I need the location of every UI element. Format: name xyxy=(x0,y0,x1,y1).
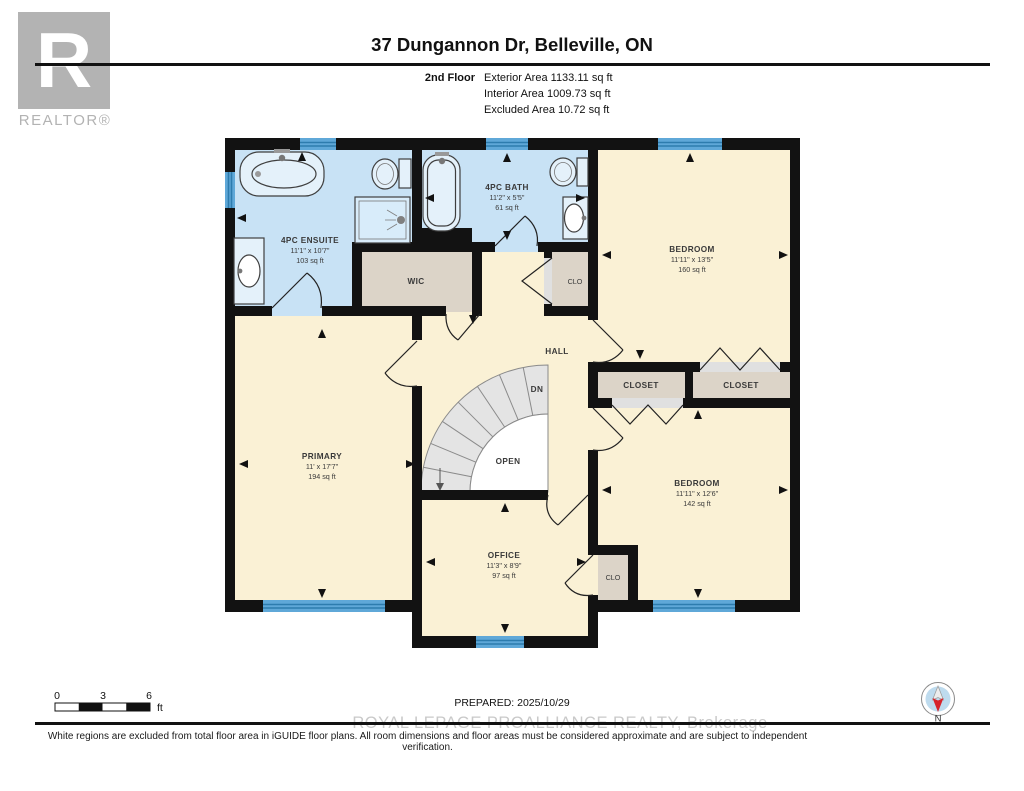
room-dims-ensuite: 11'1" x 10'7" xyxy=(291,246,330,255)
realtor-logo-word: REALTOR® xyxy=(6,112,124,129)
realtor-logo-r: R xyxy=(36,12,92,109)
room-label-bedroom1: BEDROOM xyxy=(669,245,715,254)
closet1-opening xyxy=(612,398,683,408)
window xyxy=(263,600,385,612)
bathtub-icon xyxy=(240,149,324,196)
room-area-primary: 194 sq ft xyxy=(308,472,336,481)
room-area-office: 97 sq ft xyxy=(492,571,516,580)
stairs-open-label: OPEN xyxy=(496,457,521,466)
room-label-closet2: CLOSET xyxy=(723,381,759,390)
excluded-area: Excluded Area 10.72 sq ft xyxy=(484,104,744,116)
toilet-icon xyxy=(550,158,588,186)
room-label-primary: PRIMARY xyxy=(302,452,342,461)
window xyxy=(225,172,235,208)
room-dims-bath: 11'2" x 5'5" xyxy=(490,193,525,202)
exterior-area: Exterior Area 1133.11 sq ft xyxy=(484,72,744,84)
room-label-clo-bottom: CLO xyxy=(606,573,621,582)
floor-plan-drawing: 4PC ENSUITE 11'1" x 10'7" 103 sq ft 4PC … xyxy=(0,0,1024,791)
prepared-date: PREPARED: 2025/10/29 xyxy=(0,697,1024,709)
room-area-bedroom1: 160 sq ft xyxy=(678,265,706,274)
room-label-bedroom2: BEDROOM xyxy=(674,479,720,488)
interior-area: Interior Area 1009.73 sq ft xyxy=(484,88,744,100)
header-divider xyxy=(35,63,990,66)
room-dims-office: 11'3" x 8'9" xyxy=(487,561,522,570)
window xyxy=(486,138,528,150)
room-dims-bedroom1: 11'11" x 13'5" xyxy=(671,255,714,264)
window xyxy=(476,636,524,648)
sink-icon xyxy=(234,238,264,304)
room-area-bath: 61 sq ft xyxy=(495,203,519,212)
floor-label: 2nd Floor xyxy=(330,72,475,84)
page-title: 37 Dungannon Dr, Belleville, ON xyxy=(0,34,1024,56)
room-label-closet1: CLOSET xyxy=(623,381,659,390)
room-dims-bedroom2: 11'11" x 12'6" xyxy=(676,489,719,498)
room-label-wic: WIC xyxy=(407,277,424,286)
floor-plan-page: R REALTOR® 37 Dungannon Dr, Belleville, … xyxy=(0,0,1024,791)
room-office-floor xyxy=(418,500,598,640)
toilet-icon xyxy=(372,159,411,189)
shower-icon xyxy=(355,197,410,243)
room-label-office: OFFICE xyxy=(488,551,521,560)
bathtub-icon xyxy=(423,152,460,231)
disclaimer-text: White regions are excluded from total fl… xyxy=(30,731,825,753)
window xyxy=(653,600,735,612)
sink-icon xyxy=(563,197,588,239)
clo-top-opening xyxy=(544,258,552,304)
room-primary-floor xyxy=(230,316,418,606)
realtor-logo: R xyxy=(18,12,110,109)
room-dims-primary: 11' x 17'7" xyxy=(306,462,339,471)
footer-divider xyxy=(35,722,990,725)
stairs-dn-label: DN xyxy=(531,385,544,394)
window xyxy=(658,138,722,150)
room-label-bath: 4PC BATH xyxy=(485,183,529,192)
room-label-clo-top: CLO xyxy=(568,277,583,286)
room-area-bedroom2: 142 sq ft xyxy=(683,499,711,508)
room-label-hall: HALL xyxy=(545,347,568,356)
room-area-ensuite: 103 sq ft xyxy=(296,256,324,265)
window xyxy=(300,138,336,150)
room-label-ensuite: 4PC ENSUITE xyxy=(281,236,339,245)
